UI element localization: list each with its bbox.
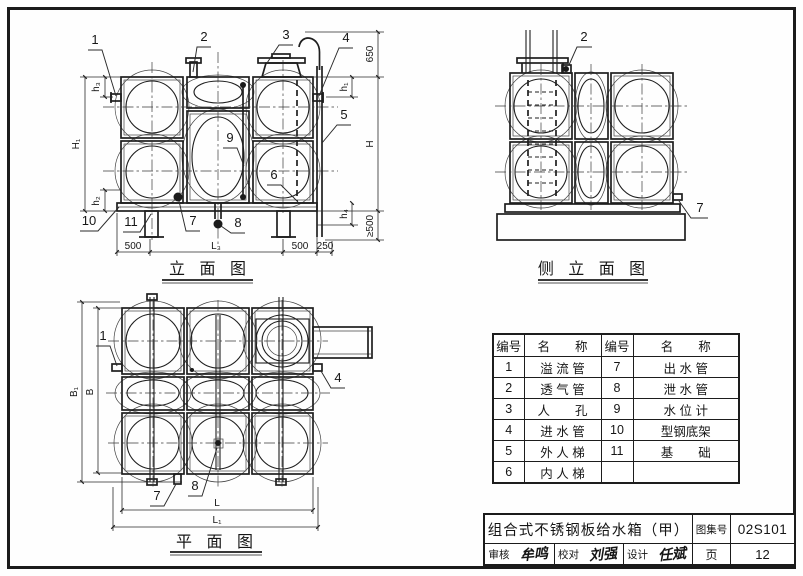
dim-B1: B₁: [69, 386, 80, 397]
design-label: 设计: [623, 544, 651, 564]
side-elevation-view-drawing: 2 7 侧 立 面 图: [478, 8, 744, 292]
plan-caption: 平 面 图: [170, 534, 262, 555]
part-name: 型钢底架: [633, 420, 739, 441]
part-no: 7: [601, 357, 633, 378]
tank-bulge-outlines: [115, 70, 320, 208]
callout-8: 8: [191, 478, 198, 493]
title-block-row-1: 组合式不锈钢板给水箱（甲） 图集号 02S101: [485, 515, 794, 544]
table-row: 1 溢 流 管 7 出 水 管: [493, 357, 739, 378]
part-name: 泄 水 管: [633, 378, 739, 399]
manhole: [517, 58, 568, 73]
dim-H: H: [365, 140, 376, 147]
part-no: [601, 462, 633, 484]
dim-min500: ≥500: [365, 214, 376, 237]
callout-7: 7: [189, 213, 196, 228]
part-name: 进 水 管: [524, 420, 601, 441]
check-signature-text: 刘强: [588, 544, 618, 564]
part-name: [633, 462, 739, 484]
outlet-pipe-fitting: [673, 194, 682, 200]
tank-panels: [121, 77, 313, 203]
dim-left-500: 500: [125, 241, 142, 252]
title-block-row-2: 审核 牟鸣 校对 刘强 设计 任斌 页 12: [485, 544, 794, 564]
callout-7: 7: [696, 200, 703, 215]
callout-10: 10: [82, 213, 96, 228]
part-name: 水 位 计: [633, 399, 739, 420]
header-name-right: 名 称: [633, 334, 739, 357]
atlas-number-label: 图集号: [692, 515, 730, 543]
side-caption: 侧 立 面 图: [538, 260, 650, 283]
callout-3: 3: [282, 27, 289, 42]
atlas-number-value: 02S101: [730, 515, 794, 543]
callout-11: 11: [124, 214, 138, 229]
table-row: 5 外 人 梯 11 基 础: [493, 441, 739, 462]
audit-signature: 牟鸣: [513, 544, 554, 564]
audit-signature-text: 牟鸣: [519, 544, 549, 564]
manhole: [258, 54, 305, 77]
check-signature: 刘强: [582, 544, 623, 564]
part-name: 外 人 梯: [524, 441, 601, 462]
dim-H1: H₁: [71, 138, 82, 149]
dim-L: L: [214, 498, 220, 509]
table-row: 3 人 孔 9 水 位 计: [493, 399, 739, 420]
part-no: 3: [493, 399, 524, 420]
elevation-caption-text: 立 面 图: [169, 260, 251, 278]
design-signature: 任斌: [651, 544, 692, 564]
callout-1: 1: [99, 328, 106, 343]
part-name: 溢 流 管: [524, 357, 601, 378]
callout-9: 9: [226, 130, 233, 145]
dim-h1: h₁: [339, 82, 350, 92]
plan-view-drawing: 1 4 7 8 B₁ B L L₁ 平 面 图: [58, 292, 402, 560]
callout-6: 6: [270, 167, 277, 182]
header-name-left: 名 称: [524, 334, 601, 357]
part-name: 内 人 梯: [524, 462, 601, 484]
dim-L1: L₁: [213, 515, 223, 526]
center-lines: [106, 300, 330, 487]
dim-B: B: [85, 388, 96, 395]
ladder-platform: [313, 327, 372, 358]
dim-h2: h₂: [91, 196, 102, 206]
elevation-view-drawing: 1 2 3 4 5 6 9 10 11 7 8: [58, 8, 402, 292]
part-no: 6: [493, 462, 524, 484]
drawing-sheet: 1 2 3 4 5 6 9 10 11 7 8: [0, 0, 803, 576]
part-no: 10: [601, 420, 633, 441]
part-no: 1: [493, 357, 524, 378]
part-no: 9: [601, 399, 633, 420]
parts-table-header-row: 编号 名 称 编号 名 称: [493, 334, 739, 357]
check-label: 校对: [554, 544, 582, 564]
water-level-gauge: [240, 82, 246, 200]
callout-8: 8: [234, 215, 241, 230]
dim-250: 250: [317, 241, 334, 252]
callout-2: 2: [200, 29, 207, 44]
center-lines: [495, 64, 688, 210]
callout-leaders: [80, 45, 353, 233]
elevation-caption: 立 面 图: [162, 260, 253, 283]
callout-5: 5: [340, 107, 347, 122]
callout-7: 7: [153, 488, 160, 503]
plan-caption-text: 平 面 图: [176, 534, 258, 551]
part-name: 透 气 管: [524, 378, 601, 399]
part-no: 8: [601, 378, 633, 399]
header-number-right: 编号: [601, 334, 633, 357]
tank-panels: [510, 73, 673, 203]
audit-label: 审核: [485, 544, 513, 564]
page-number: 12: [730, 544, 794, 564]
parts-table: 编号 名 称 编号 名 称 1 溢 流 管 7 出 水 管 2 透 气 管 8 …: [492, 333, 740, 484]
callout-2: 2: [580, 29, 587, 44]
dim-h3: h₃: [91, 82, 102, 92]
table-row: 4 进 水 管 10 型钢底架: [493, 420, 739, 441]
part-name: 人 孔: [524, 399, 601, 420]
design-signature-text: 任斌: [657, 544, 687, 564]
dimension-texts: B₁ B L L₁: [69, 386, 222, 526]
inlet-pipe-fitting: [313, 364, 322, 371]
tank-panels: [122, 308, 313, 474]
header-number-left: 编号: [493, 334, 524, 357]
title-block: 组合式不锈钢板给水箱（甲） 图集号 02S101 审核 牟鸣 校对 刘强 设计 …: [483, 513, 796, 566]
foundation-block: [497, 214, 685, 240]
drawing-title: 组合式不锈钢板给水箱（甲）: [485, 515, 692, 543]
part-no: 11: [601, 441, 633, 462]
callout-1: 1: [91, 32, 98, 47]
part-no: 4: [493, 420, 524, 441]
tie-rod-rails: [147, 294, 286, 485]
callout-4: 4: [334, 370, 341, 385]
part-no: 2: [493, 378, 524, 399]
dim-right-500: 500: [292, 241, 309, 252]
part-no: 5: [493, 441, 524, 462]
page-label: 页: [692, 544, 730, 564]
dim-h4: h₄: [339, 209, 350, 219]
outlet-pipe-fitting: [174, 193, 183, 202]
side-caption-text: 侧 立 面 图: [538, 260, 650, 278]
table-row: 2 透 气 管 8 泄 水 管: [493, 378, 739, 399]
dim-650: 650: [365, 45, 376, 62]
table-row: 6 内 人 梯: [493, 462, 739, 484]
part-name: 基 础: [633, 441, 739, 462]
ladder-stiles-above-manhole: [526, 30, 557, 73]
dim-L3: L₃: [211, 241, 221, 252]
part-name: 出 水 管: [633, 357, 739, 378]
